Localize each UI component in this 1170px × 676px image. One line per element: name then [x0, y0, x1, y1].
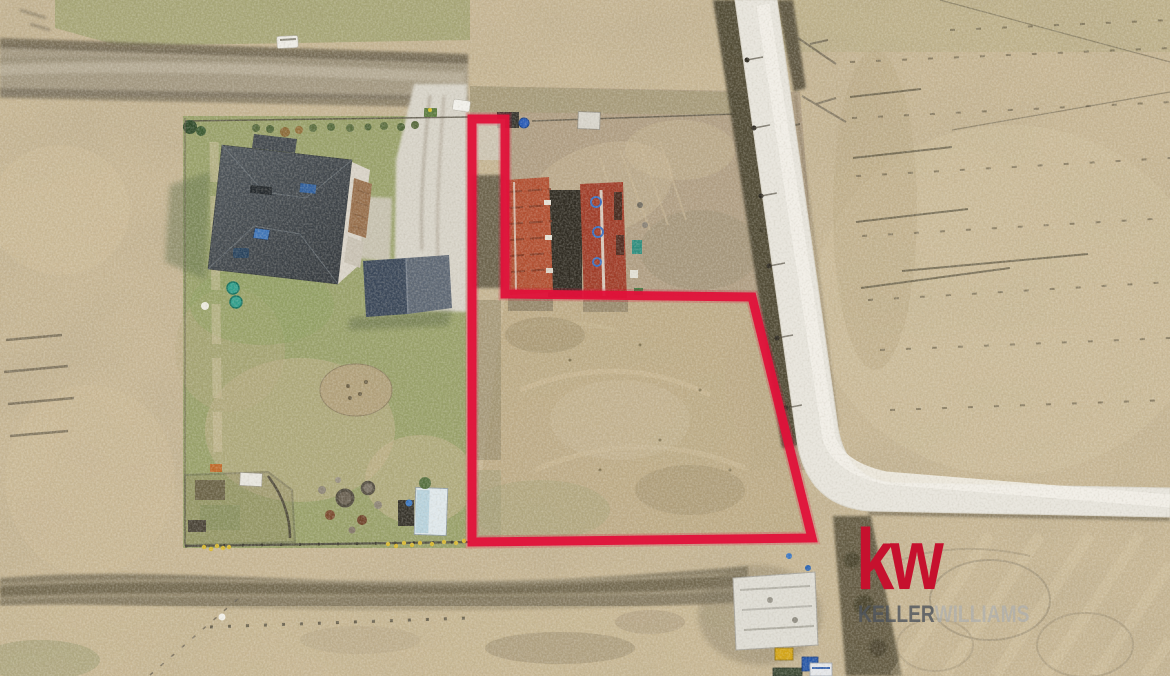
aerial-photo: kw KELLERWILLIAMS	[0, 0, 1170, 676]
grain-dark	[0, 0, 1170, 676]
